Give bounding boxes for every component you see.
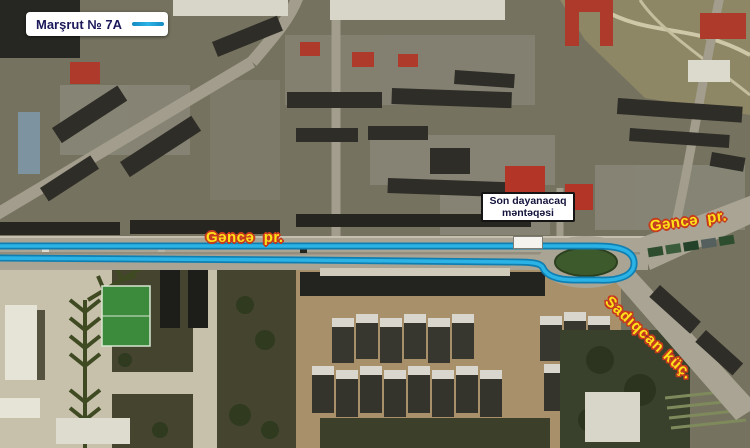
roundabout-island	[555, 248, 617, 276]
route-line-sample	[132, 22, 164, 26]
park	[0, 264, 300, 448]
satellite-basemap	[0, 0, 750, 448]
terminal-stop-label-line1: Son dayanacaq	[485, 195, 571, 207]
white-building	[585, 392, 640, 442]
terminal-stop-label: Son dayanacaq məntəqəsi	[481, 192, 575, 222]
terminal-stop-marker	[513, 236, 543, 249]
street-label-genca-left: Gəncə pr.	[206, 229, 284, 246]
legend-box: Marşrut № 7A	[26, 12, 168, 36]
white-building	[5, 305, 37, 380]
tower-block	[160, 270, 180, 328]
white-building	[56, 418, 130, 444]
tower-block	[188, 270, 208, 328]
white-building	[0, 398, 40, 418]
terminal-stop-label-line2: məntəqəsi	[485, 207, 571, 219]
route-map-screenshot: Marşrut № 7A Gəncə pr. Gəncə pr. Sadıqca…	[0, 0, 750, 448]
legend-route-label: Marşrut № 7A	[36, 17, 122, 32]
